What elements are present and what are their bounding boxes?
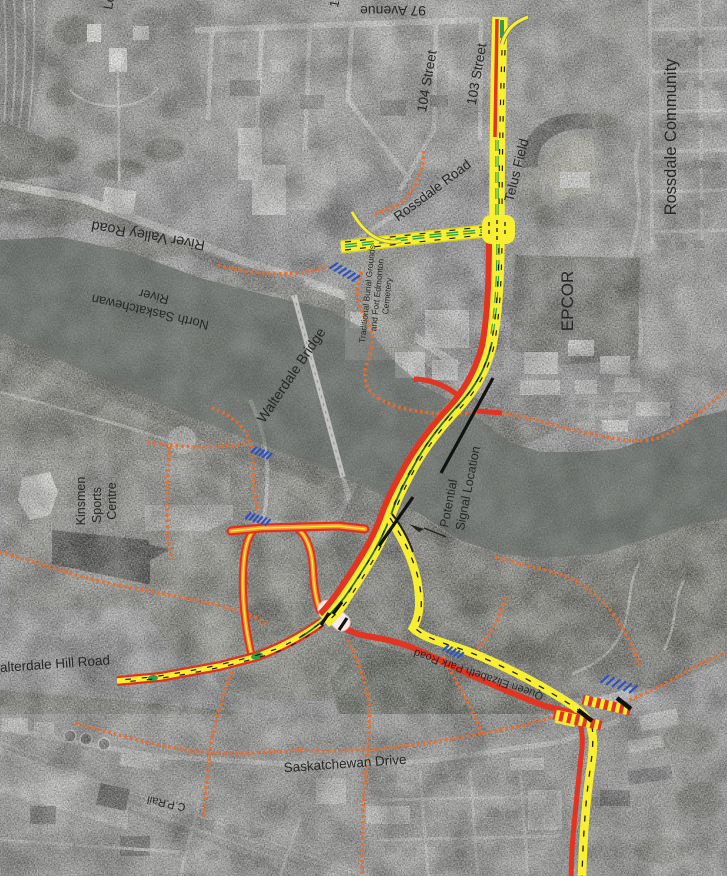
svg-text:Rossdale Community: Rossdale Community xyxy=(662,58,680,216)
svg-text:Sports: Sports xyxy=(90,487,104,523)
svg-text:EPCOR: EPCOR xyxy=(558,271,577,331)
svg-text:Kinsmen: Kinsmen xyxy=(74,477,88,526)
svg-text:Le: Le xyxy=(100,0,117,11)
svg-text:10: 10 xyxy=(326,0,343,9)
svg-text:97 Avenue: 97 Avenue xyxy=(360,3,426,19)
svg-text:Centre: Centre xyxy=(105,482,119,520)
